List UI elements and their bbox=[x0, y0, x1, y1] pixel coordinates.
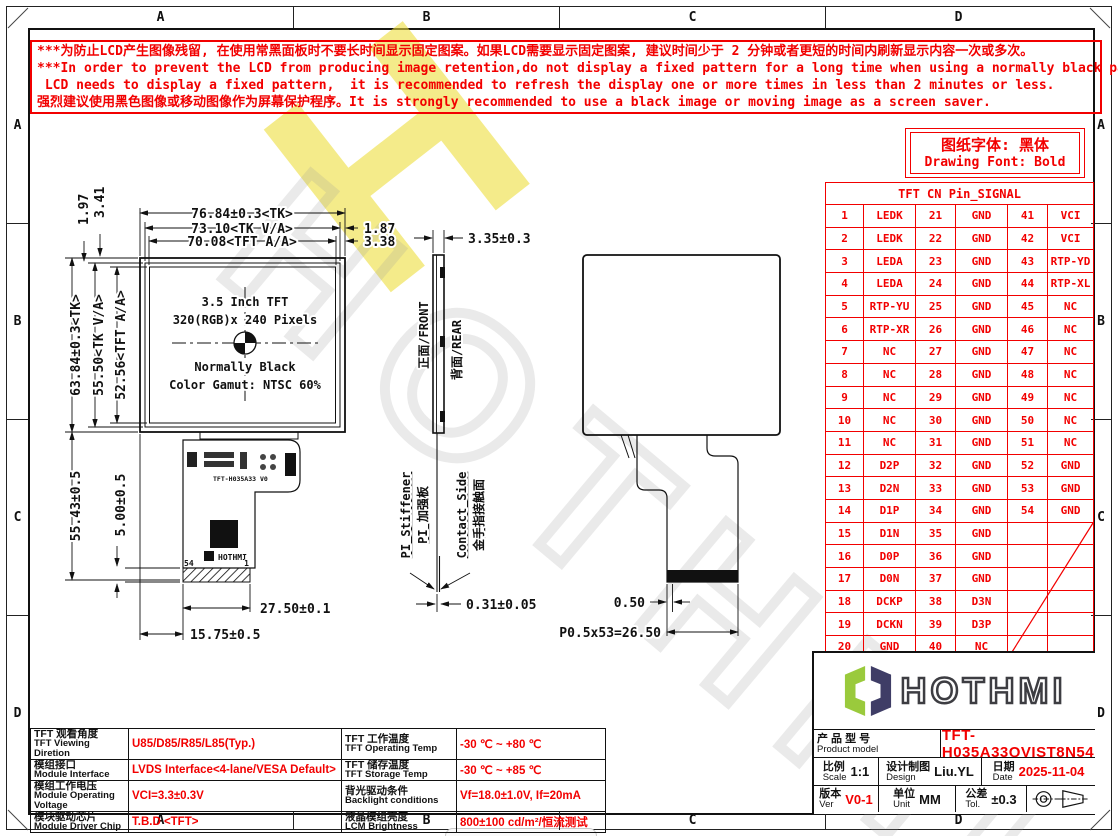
pin-signal: RTP-YD bbox=[1048, 250, 1094, 273]
pin-number: 18 bbox=[826, 590, 864, 613]
pin-signal: GND bbox=[956, 522, 1008, 545]
pin-row: 9NC29GND49NC bbox=[826, 386, 1094, 409]
pin-signal: D1P bbox=[864, 499, 916, 522]
spec-label: 背光驱动条件Backlight conditions bbox=[342, 781, 457, 812]
pin-signal: DCKP bbox=[864, 590, 916, 613]
pin-signal: NC bbox=[1048, 409, 1094, 432]
pin-signal: GND bbox=[956, 273, 1008, 296]
pin-number: 15 bbox=[826, 522, 864, 545]
title-block-ver-row: 版本Ver V0-1 单位Unit MM 公差Tol. ±0.3 bbox=[814, 785, 1095, 812]
spec-value: T.B.D <TFT> bbox=[129, 812, 342, 833]
spec-row: 模组接口Module InterfaceLVDS Interface<4-lan… bbox=[31, 760, 606, 781]
design-label-en: Design bbox=[886, 773, 930, 783]
pin-table-body: 1LEDK21GND41VCI2LEDK22GND42VCI3LEDA23GND… bbox=[826, 205, 1094, 659]
pin-number: 9 bbox=[826, 386, 864, 409]
pin-number: 35 bbox=[916, 522, 956, 545]
drawing-font-note-inner: 图纸字体: 黑体 Drawing Font: Bold bbox=[910, 132, 1080, 174]
pin-signal: GND bbox=[956, 205, 1008, 228]
pin-signal: GND bbox=[956, 386, 1008, 409]
warning-line-4: 强烈建议使用黑色图像或移动图像作为屏幕保护程序。It is strongly r… bbox=[37, 95, 991, 110]
pin-signal: GND bbox=[1048, 477, 1094, 500]
font-note-cn: 图纸字体: 黑体 bbox=[941, 136, 1049, 154]
pin-number: 21 bbox=[916, 205, 956, 228]
tolerance-value: ±0.3 bbox=[991, 792, 1016, 807]
product-model-value: TFT-H035A33QVIST8N54 bbox=[940, 730, 1095, 757]
pin-number: 30 bbox=[916, 409, 956, 432]
spec-table: TFT 观看角度TFT Viewing DiretionU85/D85/R85/… bbox=[30, 728, 606, 833]
scale-value: 1:1 bbox=[850, 764, 869, 779]
pin-number: 32 bbox=[916, 454, 956, 477]
pin-number: 2 bbox=[826, 227, 864, 250]
pin-signal: NC bbox=[864, 431, 916, 454]
pin-signal: GND bbox=[956, 409, 1008, 432]
frame-zone-label: A bbox=[7, 28, 28, 223]
pin-signal bbox=[1048, 568, 1094, 591]
pin-number: 14 bbox=[826, 499, 864, 522]
pin-signal: NC bbox=[1048, 295, 1094, 318]
pin-row: 14D1P34GND54GND bbox=[826, 499, 1094, 522]
pin-number: 11 bbox=[826, 431, 864, 454]
warning-line-1: ***为防止LCD产生图像残留, 在使用常黑面板时不要长时间显示固定图案。如果L… bbox=[37, 44, 1033, 59]
pin-row: 8NC28GND48NC bbox=[826, 363, 1094, 386]
spec-value: VCI=3.3±0.3V bbox=[129, 781, 342, 812]
pin-signal: GND bbox=[1048, 454, 1094, 477]
pin-number: 46 bbox=[1008, 318, 1048, 341]
drawing-font-note: 图纸字体: 黑体 Drawing Font: Bold bbox=[905, 128, 1085, 178]
hothmi-logo-word: HOTHMI bbox=[901, 670, 1067, 712]
spec-label: 模组工作电压Module Operating Voltage bbox=[31, 781, 129, 812]
pin-signal: NC bbox=[864, 409, 916, 432]
pin-number: 52 bbox=[1008, 454, 1048, 477]
tolerance-cell: 公差Tol. ±0.3 bbox=[955, 786, 1026, 812]
pin-signal bbox=[1048, 522, 1094, 545]
pin-signal: D0N bbox=[864, 568, 916, 591]
pin-signal: D2P bbox=[864, 454, 916, 477]
datasheet-page: H HOTHMI ABCD ABCD ABCD ABCD ***为防止LCD产生… bbox=[0, 0, 1118, 836]
hothmi-logo-mark bbox=[843, 664, 893, 718]
pin-number: 49 bbox=[1008, 386, 1048, 409]
spec-table-wrap: TFT 观看角度TFT Viewing DiretionU85/D85/R85/… bbox=[30, 728, 606, 833]
pin-row: 3LEDA23GND43RTP-YD bbox=[826, 250, 1094, 273]
pin-number: 8 bbox=[826, 363, 864, 386]
date-label-cn: 日期 bbox=[993, 761, 1015, 773]
pin-number bbox=[1008, 522, 1048, 545]
pin-signal-table: TFT CN Pin_SIGNAL 1LEDK21GND41VCI2LEDK22… bbox=[825, 182, 1094, 659]
pin-number: 7 bbox=[826, 341, 864, 364]
pin-row: 10NC30GND50NC bbox=[826, 409, 1094, 432]
frame-zone-label: B bbox=[293, 7, 559, 28]
pin-number: 24 bbox=[916, 273, 956, 296]
unit-cell: 单位Unit MM bbox=[878, 786, 955, 812]
version-value: V0-1 bbox=[845, 792, 872, 807]
version-label-en: Ver bbox=[819, 800, 841, 810]
pin-number: 39 bbox=[916, 613, 956, 636]
pin-number: 25 bbox=[916, 295, 956, 318]
date-cell: 日期Date 2025-11-04 bbox=[981, 758, 1095, 785]
pin-row: 5RTP-YU25GND45NC bbox=[826, 295, 1094, 318]
unit-value: MM bbox=[919, 792, 941, 807]
pin-signal: LEDK bbox=[864, 227, 916, 250]
pin-number: 6 bbox=[826, 318, 864, 341]
pin-signal: GND bbox=[956, 545, 1008, 568]
date-label-en: Date bbox=[993, 773, 1015, 783]
design-label-cn: 设计制图 bbox=[886, 761, 930, 773]
spec-table-body: TFT 观看角度TFT Viewing DiretionU85/D85/R85/… bbox=[31, 729, 606, 833]
pin-signal: NC bbox=[1048, 431, 1094, 454]
pin-row: 12D2P32GND52GND bbox=[826, 454, 1094, 477]
pin-number: 5 bbox=[826, 295, 864, 318]
pin-signal: GND bbox=[956, 227, 1008, 250]
unit-label-en: Unit bbox=[893, 800, 915, 810]
tolerance-label-en: Tol. bbox=[965, 800, 987, 810]
pin-number: 54 bbox=[1008, 499, 1048, 522]
title-block: HOTHMI 产 品 型 号 Product model TFT-H035A33… bbox=[812, 651, 1095, 814]
pin-signal: GND bbox=[956, 318, 1008, 341]
frame-zone-label: D bbox=[7, 615, 28, 811]
pin-row: 17D0N37GND bbox=[826, 568, 1094, 591]
product-model-label: 产 品 型 号 Product model bbox=[814, 730, 940, 757]
pin-number: 22 bbox=[916, 227, 956, 250]
projection-symbol-cell bbox=[1026, 786, 1095, 812]
pin-signal: NC bbox=[1048, 386, 1094, 409]
pin-signal: RTP-YU bbox=[864, 295, 916, 318]
pin-number: 33 bbox=[916, 477, 956, 500]
pin-signal: GND bbox=[956, 250, 1008, 273]
version-cell: 版本Ver V0-1 bbox=[814, 786, 878, 812]
pin-signal: NC bbox=[1048, 318, 1094, 341]
pin-signal: LEDA bbox=[864, 250, 916, 273]
pin-number: 50 bbox=[1008, 409, 1048, 432]
lcd-retention-warning: ***为防止LCD产生图像残留, 在使用常黑面板时不要长时间显示固定图案。如果L… bbox=[30, 40, 1102, 114]
spec-label: TFT 储存温度TFT Storage Temp bbox=[342, 760, 457, 781]
spec-label: 模组接口Module Interface bbox=[31, 760, 129, 781]
spec-label: TFT 观看角度TFT Viewing Diretion bbox=[31, 729, 129, 760]
pin-number: 48 bbox=[1008, 363, 1048, 386]
pin-number: 43 bbox=[1008, 250, 1048, 273]
pin-number: 13 bbox=[826, 477, 864, 500]
title-block-scale-row: 比例Scale 1:1 设计制图Design Liu.YL 日期Date 202… bbox=[814, 757, 1095, 785]
spec-label: 模块驱动芯片Module Driver Chip bbox=[31, 812, 129, 833]
date-value: 2025-11-04 bbox=[1019, 764, 1085, 779]
pin-signal: LEDA bbox=[864, 273, 916, 296]
pin-number: 3 bbox=[826, 250, 864, 273]
pin-signal: LEDK bbox=[864, 205, 916, 228]
pin-number: 19 bbox=[826, 613, 864, 636]
pin-signal: D1N bbox=[864, 522, 916, 545]
pin-number: 26 bbox=[916, 318, 956, 341]
pin-row: 15D1N35GND bbox=[826, 522, 1094, 545]
pin-number: 28 bbox=[916, 363, 956, 386]
warning-line-3: LCD needs to display a fixed pattern, it… bbox=[37, 78, 1054, 93]
spec-row: TFT 观看角度TFT Viewing DiretionU85/D85/R85/… bbox=[31, 729, 606, 760]
frame-zone-label: D bbox=[825, 7, 1091, 28]
pin-signal: GND bbox=[956, 477, 1008, 500]
pin-number: 44 bbox=[1008, 273, 1048, 296]
pin-row: 19DCKN39D3P bbox=[826, 613, 1094, 636]
spec-label: 液晶模组亮度LCM Brightness bbox=[342, 812, 457, 833]
pin-row: 1LEDK21GND41VCI bbox=[826, 205, 1094, 228]
pin-signal: D0P bbox=[864, 545, 916, 568]
pin-signal bbox=[1048, 613, 1094, 636]
scale-cell: 比例Scale 1:1 bbox=[814, 758, 878, 785]
design-value: Liu.YL bbox=[934, 764, 974, 779]
pin-signal: GND bbox=[956, 363, 1008, 386]
spec-value: LVDS Interface<4-lane/VESA Default> bbox=[129, 760, 342, 781]
frame-zone-label: A bbox=[28, 7, 293, 28]
pin-number: 16 bbox=[826, 545, 864, 568]
spec-value: -30 ℃ ~ +80 ℃ bbox=[457, 729, 606, 760]
pin-signal: GND bbox=[956, 499, 1008, 522]
pin-row: 2LEDK22GND42VCI bbox=[826, 227, 1094, 250]
pin-number: 38 bbox=[916, 590, 956, 613]
projection-symbol-icon bbox=[1030, 788, 1092, 810]
pin-number: 31 bbox=[916, 431, 956, 454]
scale-label-en: Scale bbox=[823, 773, 847, 783]
pin-number: 37 bbox=[916, 568, 956, 591]
spec-value: 800±100 cd/m²/恒流测试 bbox=[457, 812, 606, 833]
pin-number: 17 bbox=[826, 568, 864, 591]
pin-number bbox=[1008, 568, 1048, 591]
pin-number: 36 bbox=[916, 545, 956, 568]
pin-number: 41 bbox=[1008, 205, 1048, 228]
pin-row: 18DCKP38D3N bbox=[826, 590, 1094, 613]
spec-value: -30 ℃ ~ +85 ℃ bbox=[457, 760, 606, 781]
pin-signal: NC bbox=[864, 386, 916, 409]
pin-signal: D2N bbox=[864, 477, 916, 500]
frame-column-labels-top: ABCD bbox=[28, 7, 1091, 28]
pin-number: 45 bbox=[1008, 295, 1048, 318]
pin-number bbox=[1008, 613, 1048, 636]
pin-signal bbox=[1048, 590, 1094, 613]
pin-row: 11NC31GND51NC bbox=[826, 431, 1094, 454]
spec-value: U85/D85/R85/L85(Typ.) bbox=[129, 729, 342, 760]
pin-row: 16D0P36GND bbox=[826, 545, 1094, 568]
frame-row-labels-left: ABCD bbox=[7, 28, 28, 811]
pin-signal: GND bbox=[956, 295, 1008, 318]
pin-number bbox=[1008, 545, 1048, 568]
pin-number: 47 bbox=[1008, 341, 1048, 364]
pin-number: 51 bbox=[1008, 431, 1048, 454]
pin-signal-table-wrap: TFT CN Pin_SIGNAL 1LEDK21GND41VCI2LEDK22… bbox=[825, 182, 1094, 659]
spec-row: 模块驱动芯片Module Driver ChipT.B.D <TFT>液晶模组亮… bbox=[31, 812, 606, 833]
pin-signal: D3N bbox=[956, 590, 1008, 613]
design-cell: 设计制图Design Liu.YL bbox=[878, 758, 981, 785]
pin-row: 4LEDA24GND44RTP-XL bbox=[826, 273, 1094, 296]
scale-label-cn: 比例 bbox=[823, 761, 847, 773]
product-model-label-cn: 产 品 型 号 bbox=[817, 733, 937, 745]
pin-signal bbox=[1048, 545, 1094, 568]
pin-signal: D3P bbox=[956, 613, 1008, 636]
pin-row: 13D2N33GND53GND bbox=[826, 477, 1094, 500]
pin-number: 27 bbox=[916, 341, 956, 364]
pin-row: 7NC27GND47NC bbox=[826, 341, 1094, 364]
pin-signal: GND bbox=[1048, 499, 1094, 522]
product-model-label-en: Product model bbox=[817, 745, 937, 755]
pin-signal: RTP-XL bbox=[1048, 273, 1094, 296]
pin-number: 10 bbox=[826, 409, 864, 432]
pin-signal: NC bbox=[864, 363, 916, 386]
pin-signal: GND bbox=[956, 568, 1008, 591]
frame-zone-label: B bbox=[7, 223, 28, 419]
pin-number: 29 bbox=[916, 386, 956, 409]
pin-number: 23 bbox=[916, 250, 956, 273]
pin-signal: NC bbox=[1048, 341, 1094, 364]
pin-number: 12 bbox=[826, 454, 864, 477]
title-block-product-row: 产 品 型 号 Product model TFT-H035A33QVIST8N… bbox=[814, 729, 1095, 757]
pin-row: 6RTP-XR26GND46NC bbox=[826, 318, 1094, 341]
spec-value: Vf=18.0±1.0V, If=20mA bbox=[457, 781, 606, 812]
pin-signal: NC bbox=[1048, 363, 1094, 386]
pin-signal: NC bbox=[864, 341, 916, 364]
warning-line-2: ***In order to prevent the LCD from prod… bbox=[37, 61, 1118, 76]
pin-signal: VCI bbox=[1048, 227, 1094, 250]
pin-number: 53 bbox=[1008, 477, 1048, 500]
pin-number: 34 bbox=[916, 499, 956, 522]
pin-signal: RTP-XR bbox=[864, 318, 916, 341]
font-note-en: Drawing Font: Bold bbox=[925, 154, 1066, 171]
pin-signal: GND bbox=[956, 454, 1008, 477]
pin-table-title: TFT CN Pin_SIGNAL bbox=[826, 183, 1094, 205]
frame-zone-label: C bbox=[7, 419, 28, 615]
frame-zone-label: C bbox=[559, 7, 825, 28]
title-block-logo-row: HOTHMI bbox=[814, 653, 1095, 729]
pin-number: 1 bbox=[826, 205, 864, 228]
spec-row: 模组工作电压Module Operating VoltageVCI=3.3±0.… bbox=[31, 781, 606, 812]
pin-signal: GND bbox=[956, 341, 1008, 364]
spec-label: TFT 工作温度TFT Operating Temp bbox=[342, 729, 457, 760]
pin-number: 4 bbox=[826, 273, 864, 296]
pin-signal: DCKN bbox=[864, 613, 916, 636]
pin-signal: VCI bbox=[1048, 205, 1094, 228]
pin-number bbox=[1008, 590, 1048, 613]
pin-signal: GND bbox=[956, 431, 1008, 454]
pin-number: 42 bbox=[1008, 227, 1048, 250]
